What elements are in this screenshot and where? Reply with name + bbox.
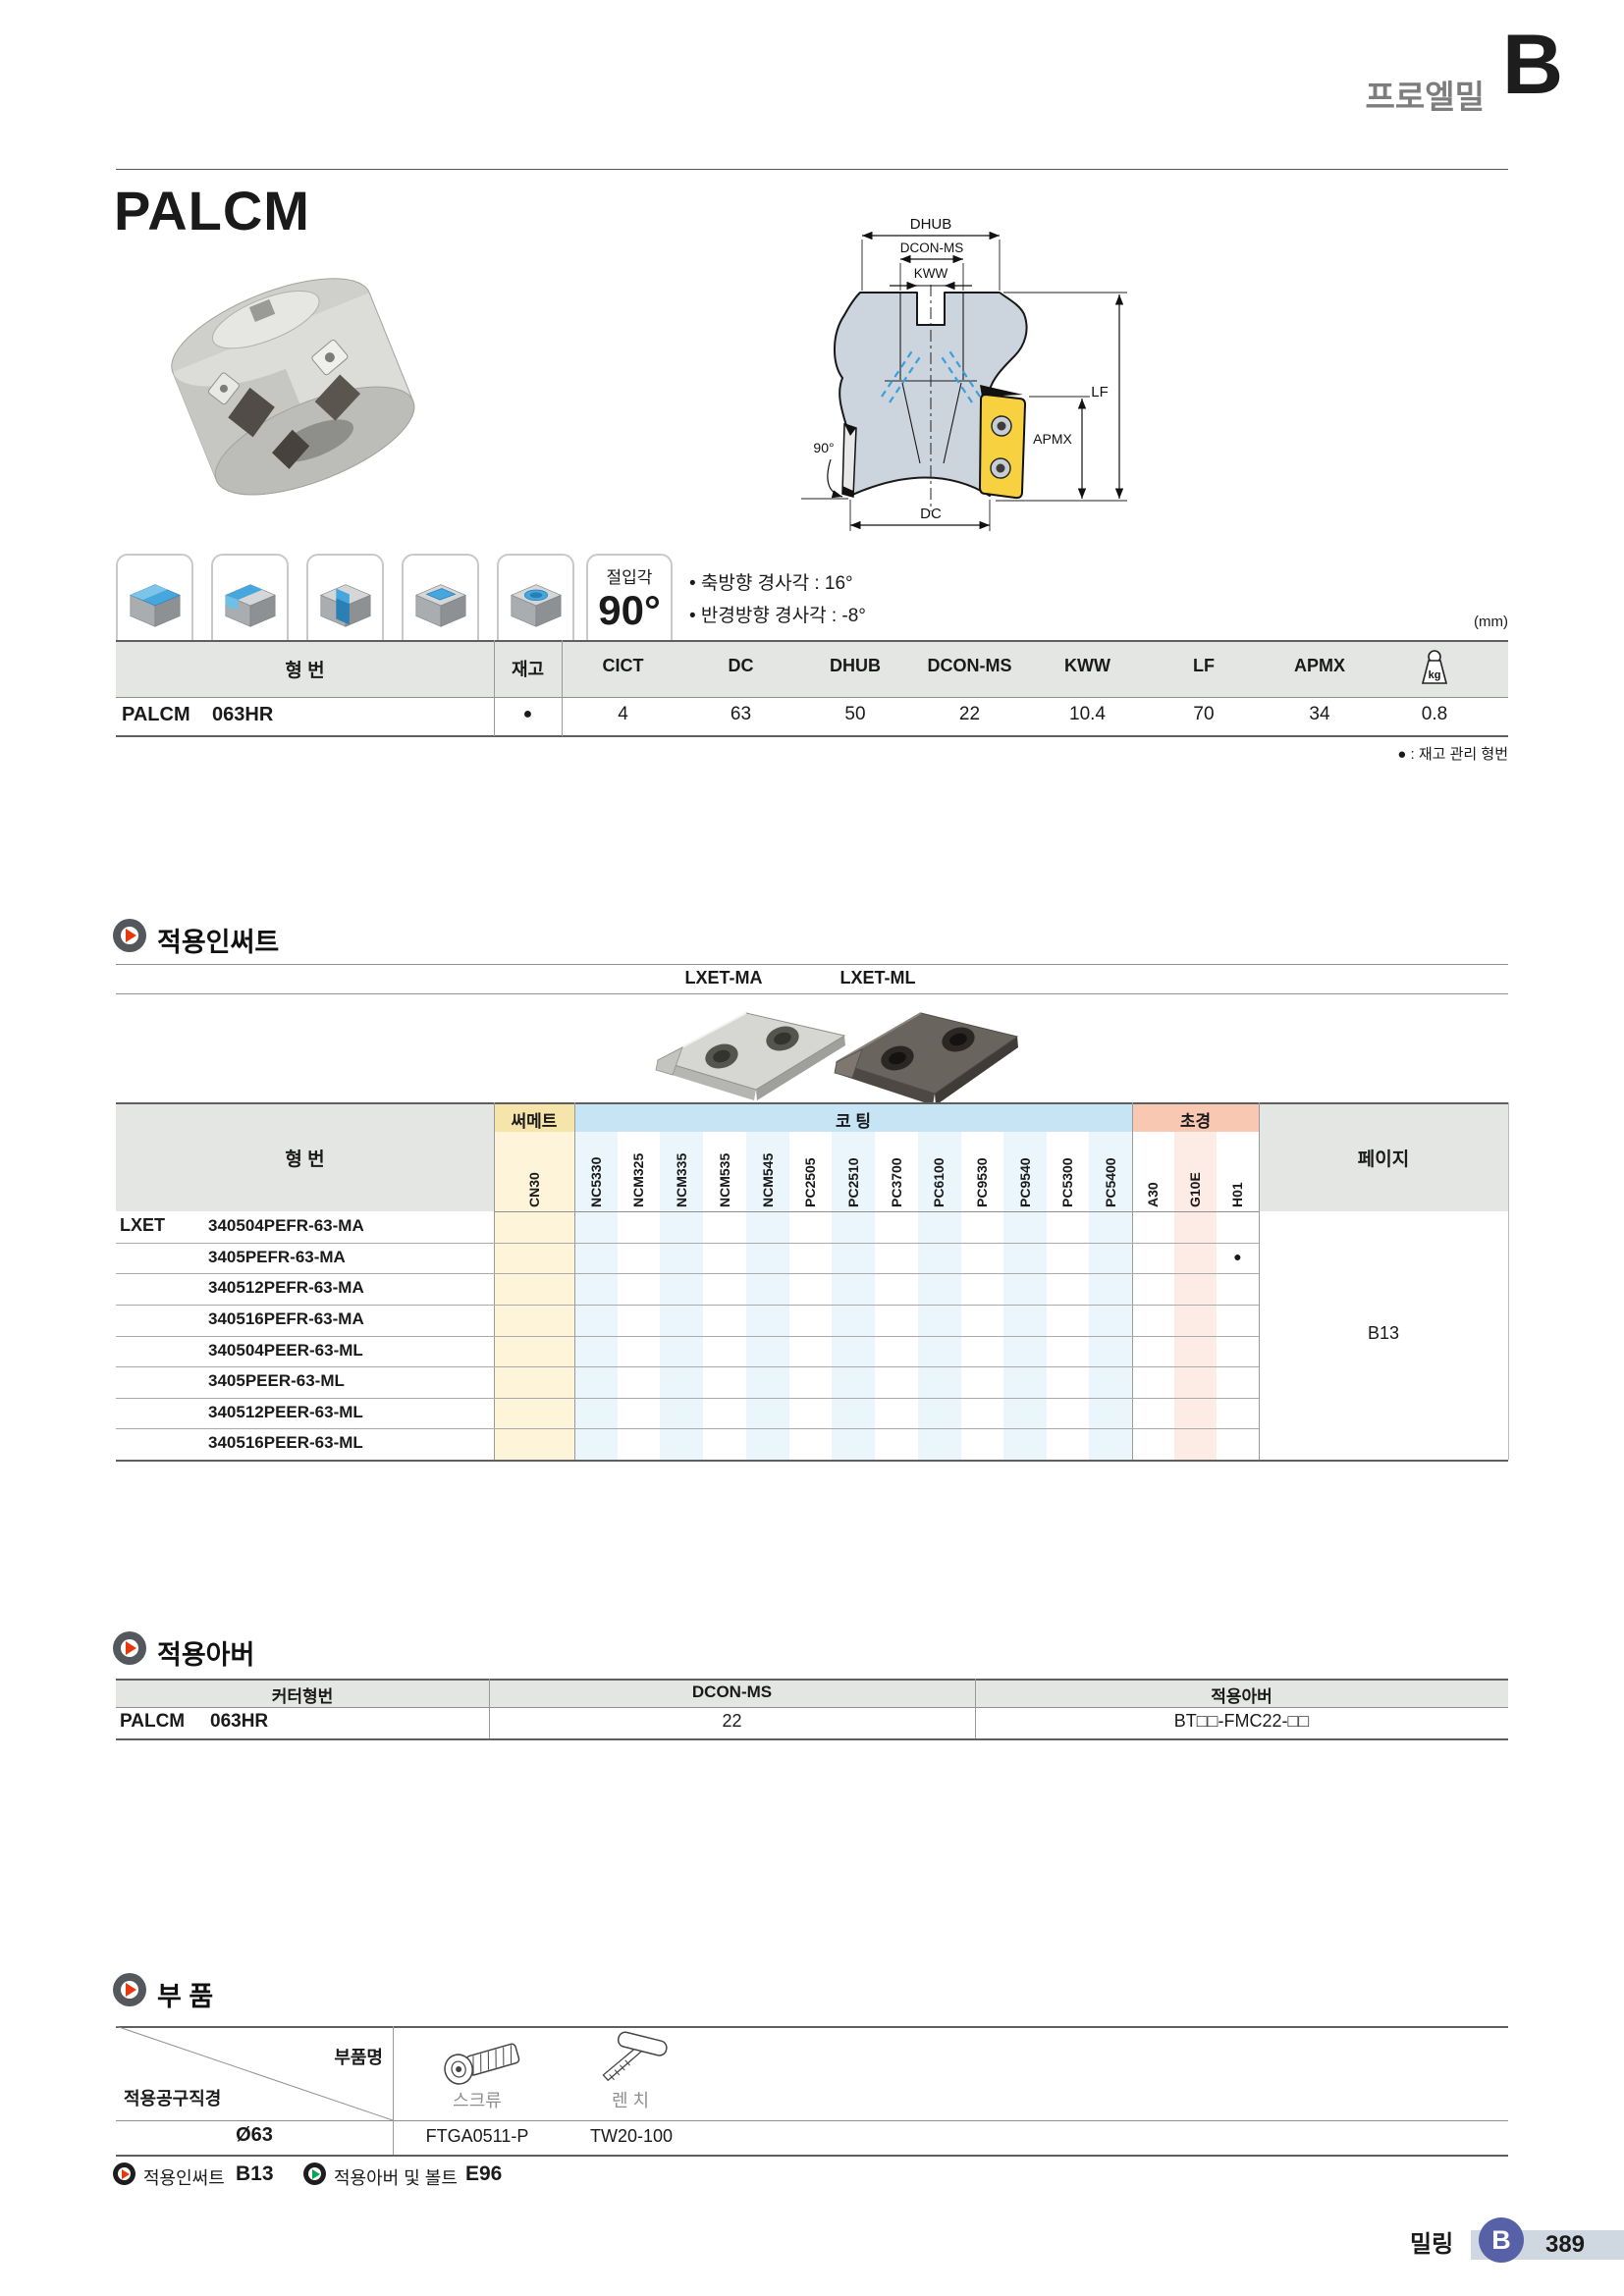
parts-name: 스크류 xyxy=(428,2087,526,2112)
spec-value: 63 xyxy=(684,704,797,725)
grade-divider xyxy=(494,1102,495,1460)
grade-group-cermet: 써메트 xyxy=(494,1107,574,1132)
insert-part: 340516PEER-63-ML xyxy=(208,1433,363,1453)
insert-part: 3405PEER-63-ML xyxy=(208,1371,345,1391)
insert-link-label: 적용인써트 xyxy=(143,2164,225,2190)
grade-label: NCM545 xyxy=(760,1153,776,1207)
pocket-milling-icon xyxy=(410,577,471,630)
grade-group-carbide: 초경 xyxy=(1132,1107,1259,1132)
grade-label: NCM325 xyxy=(630,1153,646,1207)
footer-page-number: 389 xyxy=(1528,2230,1602,2260)
insert-part: 340516PEFR-63-MA xyxy=(208,1309,364,1329)
spec-row-stock: ● xyxy=(494,706,562,723)
parts-name: 렌 치 xyxy=(581,2087,679,2112)
page-title: PALCM xyxy=(114,179,310,242)
grade-label: PC3700 xyxy=(889,1157,904,1207)
section-letter: B xyxy=(1498,18,1567,112)
footer-tab-letter: B xyxy=(1479,2217,1524,2263)
spec-value: 22 xyxy=(913,704,1026,725)
section-bullet-icon xyxy=(113,919,146,952)
spec-value: 10.4 xyxy=(1026,704,1149,725)
weight-icon: kg xyxy=(1417,648,1452,687)
spec-col: LF xyxy=(1149,656,1259,676)
spec-value: 70 xyxy=(1149,704,1259,725)
grade-divider xyxy=(1508,1102,1509,1460)
grade-row-line xyxy=(116,1273,1259,1274)
dim-dc: DC xyxy=(920,506,942,522)
yellow-insert xyxy=(980,395,1025,498)
arbor-col: 커터형번 xyxy=(116,1682,489,1707)
parts-code: TW20-100 xyxy=(558,2126,705,2147)
grade-mark-h01: ● xyxy=(1217,1249,1259,1264)
dim-apmx: APMX xyxy=(1033,431,1072,447)
parts-diameter-value: Ø63 xyxy=(156,2124,352,2147)
spec-col: KWW xyxy=(1026,656,1149,676)
spec-table-mid-border xyxy=(116,697,1508,698)
arbor-mid xyxy=(116,1707,1508,1708)
spec-col: DC xyxy=(684,656,797,676)
arbor-link-label: 적용아버 및 볼트 xyxy=(334,2164,458,2190)
catalog-page: 프로엘밀 B PALCM xyxy=(0,0,1624,2296)
wrench-icon xyxy=(587,2028,676,2093)
spec-value: 34 xyxy=(1259,704,1380,725)
svg-text:kg: kg xyxy=(1429,669,1441,681)
grade-label: NC5330 xyxy=(588,1157,604,1207)
spec-table-top-border xyxy=(116,640,1508,642)
slotting-icon xyxy=(315,577,376,630)
dim-dcon: DCON-MS xyxy=(900,240,964,255)
insert-part: 3405PEFR-63-MA xyxy=(208,1248,346,1267)
arbor-link-icon xyxy=(303,2163,326,2185)
grade-label: PC6100 xyxy=(931,1157,947,1207)
dim-angle: 90° xyxy=(813,440,834,455)
arbor-section-title: 적용아버 xyxy=(157,1633,254,1672)
entry-angle-value: 90° xyxy=(586,587,673,634)
grade-table-bottom xyxy=(116,1460,1508,1462)
grade-label: PC5300 xyxy=(1059,1157,1075,1207)
insert-part: 340504PEFR-63-MA xyxy=(208,1216,364,1236)
grade-row-line xyxy=(116,1305,1259,1306)
spec-col: APMX xyxy=(1259,656,1380,676)
grade-divider xyxy=(574,1102,575,1460)
insert-part: 340512PEFR-63-MA xyxy=(208,1278,364,1298)
unit-note: (mm) xyxy=(1410,614,1508,630)
grade-group-coating: 코 팅 xyxy=(574,1107,1132,1132)
spec-col: CICT xyxy=(562,656,684,676)
top-rule xyxy=(116,169,1508,170)
parts-divider xyxy=(393,2026,394,2155)
stock-footnote: ● : 재고 관리 형번 xyxy=(1214,743,1508,764)
grade-divider xyxy=(1132,1102,1133,1460)
grade-label: PC9540 xyxy=(1017,1157,1033,1207)
insert-link-icon xyxy=(113,2163,135,2185)
grade-series: LXET xyxy=(120,1215,165,1236)
insert-rule-top xyxy=(116,964,1508,965)
insert-part: 340512PEER-63-ML xyxy=(208,1403,363,1422)
spec-table-bottom-border xyxy=(116,735,1508,737)
arbor-link-page: E96 xyxy=(465,2163,502,2186)
spec-value: 50 xyxy=(797,704,913,725)
insert-type-label: LXET-ML xyxy=(829,968,927,988)
grade-col-model: 형 번 xyxy=(116,1145,494,1171)
grade-label: CN30 xyxy=(526,1172,542,1207)
grade-label: PC2510 xyxy=(845,1157,861,1207)
spec-row-weight: 0.8 xyxy=(1380,704,1489,725)
spec-row-model: 063HR xyxy=(212,704,273,726)
footer-category: 밀링 xyxy=(1410,2230,1453,2260)
arbor-row-series: PALCM xyxy=(120,1711,185,1733)
spec-row-series: PALCM xyxy=(122,704,190,726)
parts-code: FTGA0511-P xyxy=(399,2126,556,2147)
parts-col-diameter: 적용공구직경 xyxy=(124,2085,221,2110)
spec-col-stock: 재고 xyxy=(494,656,562,681)
spec-col: DCON-MS xyxy=(913,656,1026,676)
arbor-row-arbor: BT□□-FMC22-□□ xyxy=(975,1711,1508,1732)
grade-row-line xyxy=(116,1336,1259,1337)
section-bullet-icon xyxy=(113,1973,146,2006)
parts-bottom xyxy=(116,2155,1508,2157)
dim-kww: KWW xyxy=(914,266,948,281)
insert-part: 340504PEER-63-ML xyxy=(208,1341,363,1361)
insert-page-ref: B13 xyxy=(1259,1323,1508,1344)
insert-section-title: 적용인써트 xyxy=(157,921,279,959)
section-bullet-icon xyxy=(113,1631,146,1665)
grade-row-line xyxy=(116,1366,1259,1367)
arbor-row-dcon: 22 xyxy=(489,1711,975,1732)
grade-label: A30 xyxy=(1145,1182,1161,1207)
grade-header-bottom xyxy=(494,1211,1259,1212)
rake-note-radial: • 반경방향 경사각 : -8° xyxy=(689,601,866,627)
brand-label: 프로엘밀 xyxy=(1337,71,1485,118)
screw-icon xyxy=(430,2032,528,2093)
grade-row-line xyxy=(116,1243,1259,1244)
grade-row-line xyxy=(116,1398,1259,1399)
grade-label: G10E xyxy=(1187,1172,1203,1207)
grade-col-page: 페이지 xyxy=(1259,1145,1508,1171)
arbor-bottom xyxy=(116,1738,1508,1740)
dimension-diagram: DHUB DCON-MS KWW LF APMX DC xyxy=(797,183,1161,536)
parts-col-name: 부품명 xyxy=(238,2044,383,2069)
insert-link-page: B13 xyxy=(236,2163,274,2186)
dim-lf: LF xyxy=(1091,384,1109,400)
entry-angle-label: 절입각 xyxy=(586,563,673,588)
grade-label: NCM535 xyxy=(717,1153,732,1207)
rake-note-axial: • 축방향 경사각 : 16° xyxy=(689,568,853,595)
face-milling-icon xyxy=(125,577,186,630)
helical-milling-icon xyxy=(506,577,567,630)
insert-rule-bottom xyxy=(116,993,1508,994)
arbor-row-model: 063HR xyxy=(210,1711,268,1733)
insert-type-label: LXET-MA xyxy=(675,968,773,988)
spec-value: 4 xyxy=(562,704,684,725)
spec-col-model: 형 번 xyxy=(116,656,494,682)
shoulder-milling-icon xyxy=(220,577,281,630)
spec-col: DHUB xyxy=(797,656,913,676)
arbor-col: DCON-MS xyxy=(489,1682,975,1702)
grade-label: PC5400 xyxy=(1103,1157,1118,1207)
insert-photo-lxet-ml xyxy=(825,999,1026,1109)
grade-table-top xyxy=(116,1102,1508,1104)
arbor-col: 적용아버 xyxy=(975,1682,1508,1707)
parts-section-title: 부 품 xyxy=(157,1975,213,2013)
grade-label: PC2505 xyxy=(802,1157,818,1207)
parts-mid xyxy=(116,2120,1508,2121)
grade-label: PC9530 xyxy=(974,1157,990,1207)
grade-label: NCM335 xyxy=(674,1153,689,1207)
grade-label: H01 xyxy=(1229,1182,1245,1207)
product-photo xyxy=(133,243,457,528)
grade-row-line xyxy=(116,1428,1259,1429)
arbor-top xyxy=(116,1679,1508,1681)
dim-dhub: DHUB xyxy=(910,216,952,233)
